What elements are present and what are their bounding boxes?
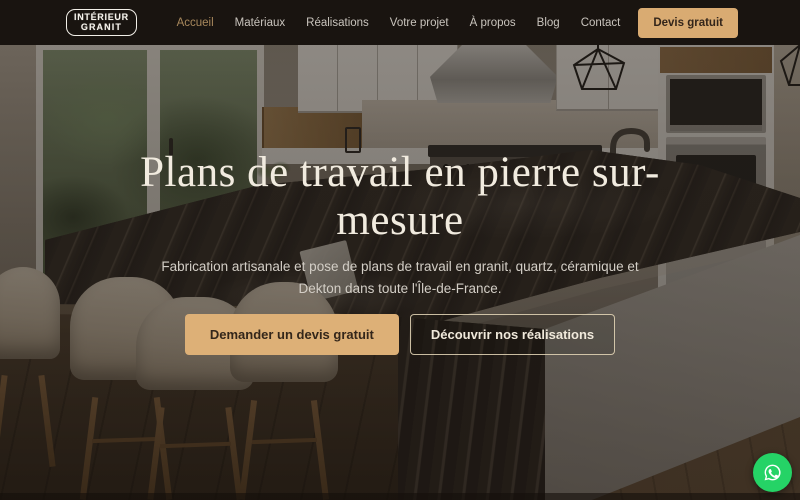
brand-logo[interactable]: INTÉRIEUR GRANIT bbox=[66, 9, 137, 37]
hero-section: Plans de travail en pierre sur- mesure F… bbox=[0, 45, 800, 500]
nav-links: Accueil Matériaux Réalisations Votre pro… bbox=[177, 17, 621, 29]
hero-title-line2: mesure bbox=[140, 197, 660, 245]
whatsapp-icon bbox=[761, 461, 784, 484]
hero-subtitle: Fabrication artisanale et pose de plans … bbox=[150, 256, 650, 299]
demander-devis-button[interactable]: Demander un devis gratuit bbox=[185, 314, 399, 355]
brand-logo-line1: INTÉRIEUR bbox=[74, 12, 129, 22]
nav-link-blog[interactable]: Blog bbox=[537, 17, 560, 29]
hero-title: Plans de travail en pierre sur- mesure bbox=[140, 149, 660, 245]
devis-gratuit-nav-button[interactable]: Devis gratuit bbox=[638, 8, 738, 38]
brand-logo-line2: GRANIT bbox=[74, 22, 129, 32]
landing-page: INTÉRIEUR GRANIT Accueil Matériaux Réali… bbox=[0, 0, 800, 500]
nav-link-materiaux[interactable]: Matériaux bbox=[235, 17, 286, 29]
hero-cta-row: Demander un devis gratuit Découvrir nos … bbox=[185, 314, 615, 355]
nav-link-votre-projet[interactable]: Votre projet bbox=[390, 17, 449, 29]
nav-link-contact[interactable]: Contact bbox=[581, 17, 621, 29]
nav-link-realisations[interactable]: Réalisations bbox=[306, 17, 369, 29]
hero-title-line1: Plans de travail en pierre sur- bbox=[140, 149, 660, 197]
decouvrir-realisations-button[interactable]: Découvrir nos réalisations bbox=[410, 314, 615, 355]
hero-content: Plans de travail en pierre sur- mesure F… bbox=[0, 45, 800, 500]
top-navigation-bar: INTÉRIEUR GRANIT Accueil Matériaux Réali… bbox=[0, 0, 800, 45]
nav-link-a-propos[interactable]: À propos bbox=[470, 17, 516, 29]
whatsapp-fab-button[interactable] bbox=[753, 453, 792, 492]
nav-link-accueil[interactable]: Accueil bbox=[177, 17, 214, 29]
